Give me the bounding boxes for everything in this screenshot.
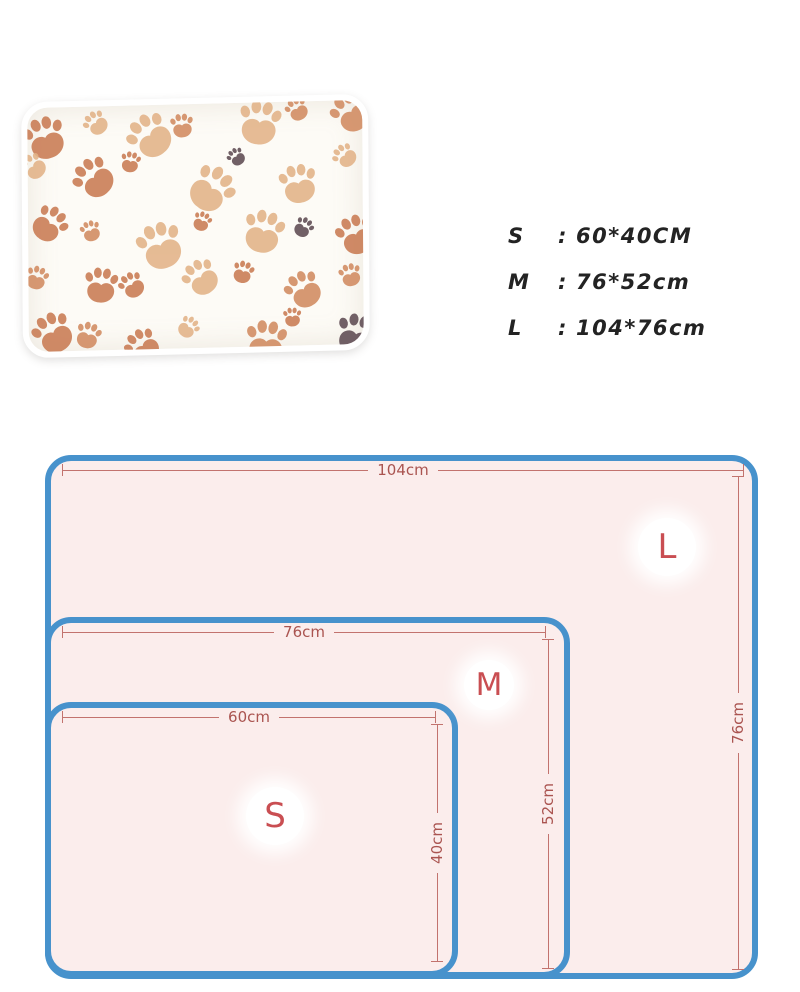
paw-print-icon (326, 306, 369, 358)
dimension-tick (545, 626, 546, 638)
width-dimension-label-l: 104cm (368, 463, 438, 477)
size-rect-s (45, 702, 458, 977)
paw-print-icon (325, 135, 367, 177)
size-letter-badge-s: S (246, 787, 304, 845)
dimension-tick (431, 961, 443, 962)
width-dimension-l: 104cm (62, 463, 744, 477)
paw-print-icon (114, 316, 174, 358)
dimension-tick (435, 711, 436, 723)
paw-print-icon (21, 193, 80, 255)
dimension-line (738, 753, 739, 969)
size-row-label: M (508, 270, 550, 294)
dimension-line (334, 632, 545, 633)
paw-print-icon (232, 201, 295, 264)
dimension-line (63, 632, 274, 633)
dimension-tick (732, 969, 744, 970)
dimension-line (279, 717, 435, 718)
dimension-line (548, 640, 549, 774)
paw-print-icon (270, 156, 327, 214)
size-list: S : 60*40CM M : 76*52cm L : 104*76cm (508, 224, 706, 340)
dimension-tick (542, 968, 554, 969)
paw-print-icon (115, 148, 145, 178)
dimension-line (438, 470, 743, 471)
height-dimension-l: 76cm (731, 476, 745, 970)
height-dimension-label-l: 76cm (729, 693, 747, 753)
dimension-line (548, 834, 549, 968)
dimension-line (738, 477, 739, 693)
size-row-value: 60*40CM (576, 224, 692, 248)
blanket-image (21, 94, 370, 359)
paw-print-icon (166, 109, 199, 142)
paw-print-icon (75, 102, 118, 145)
size-row-separator: : (550, 224, 576, 248)
size-row-value: 104*76cm (576, 316, 706, 340)
paw-print-icon (170, 309, 208, 347)
size-row-l: L : 104*76cm (508, 316, 706, 340)
paw-print-icon (333, 258, 368, 293)
size-letter-badge-m: M (464, 660, 514, 710)
width-dimension-s: 60cm (62, 710, 436, 724)
height-dimension-m: 52cm (541, 639, 555, 969)
height-dimension-s: 40cm (430, 724, 444, 962)
dimension-line (437, 873, 438, 961)
page: S : 60*40CM M : 76*52cm L : 104*76cm 104… (0, 0, 800, 992)
height-dimension-label-s: 40cm (428, 813, 446, 873)
dimension-line (63, 470, 368, 471)
size-row-m: M : 76*52cm (508, 270, 706, 294)
size-row-separator: : (550, 316, 576, 340)
paw-print-icon (324, 203, 369, 268)
dimension-line (63, 717, 219, 718)
dimension-tick (743, 464, 744, 476)
dimension-line (437, 725, 438, 813)
size-row-label: L (508, 316, 550, 340)
width-dimension-m: 76cm (62, 625, 546, 639)
paw-print-icon (226, 256, 260, 289)
size-row-separator: : (550, 270, 576, 294)
height-dimension-label-m: 52cm (539, 774, 557, 834)
width-dimension-label-m: 76cm (274, 625, 334, 639)
size-row-s: S : 60*40CM (508, 224, 706, 248)
width-dimension-label-s: 60cm (219, 710, 279, 724)
size-row-value: 76*52cm (576, 270, 690, 294)
size-row-label: S (508, 224, 550, 248)
size-letter-badge-l: L (638, 518, 696, 576)
paw-print-icon (280, 305, 305, 330)
paw-print-icon (21, 260, 55, 296)
